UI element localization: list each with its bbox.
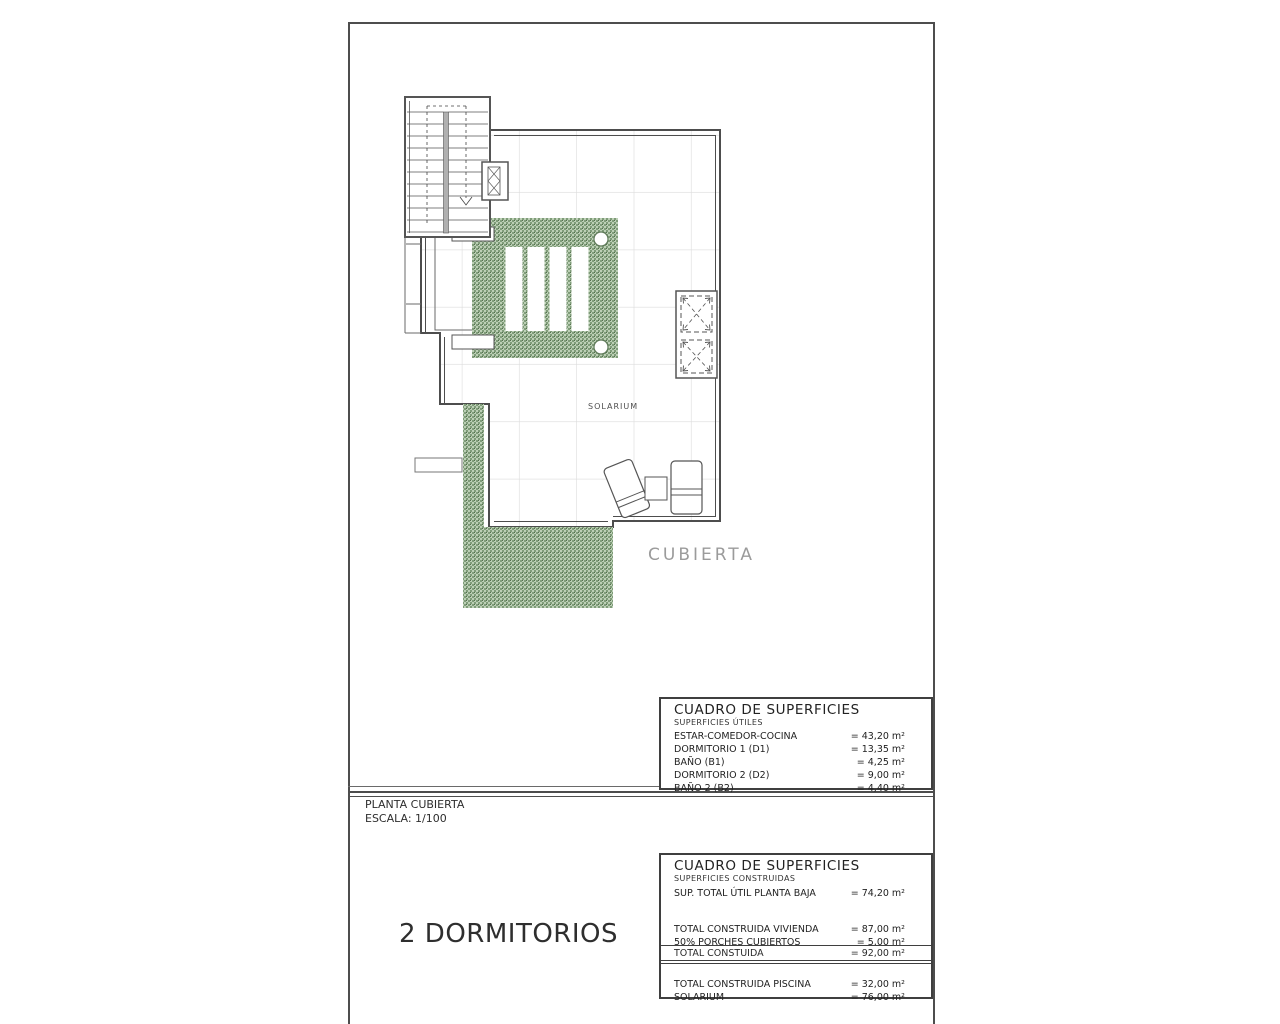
table-title: CUADRO DE SUPERFICIES	[674, 858, 860, 874]
side-table	[645, 477, 667, 500]
drawing-sheet: SOLARIUM CUBIERTA CUADRO DE SUPERFICIES …	[0, 0, 1280, 1024]
rule	[661, 963, 931, 964]
roof-plan-drawing	[0, 0, 1280, 1024]
table-title: CUADRO DE SUPERFICIES	[674, 702, 860, 718]
surfaces-table-construidas: CUADRO DE SUPERFICIES SUPERFICIES CONSTR…	[659, 853, 933, 999]
staircase	[405, 97, 490, 237]
table-row: BAÑO (B1) = 4,25 m²	[674, 757, 905, 770]
skylight-shafts	[676, 291, 717, 378]
roof-hatch-box	[482, 162, 508, 200]
table-subtitle: SUPERFICIES CONSTRUIDAS	[674, 874, 795, 883]
surfaces-table-utiles: CUADRO DE SUPERFICIES SUPERFICIES ÚTILES…	[659, 697, 933, 790]
bedrooms-label: 2 DORMITORIOS	[399, 919, 618, 949]
table-row: ESTAR-COMEDOR-COCINA = 43,20 m²	[674, 731, 905, 744]
total-row: TOTAL CONSTUIDA = 92,00 m²	[661, 945, 931, 961]
table-row: DORMITORIO 1 (D1) = 13,35 m²	[674, 744, 905, 757]
table-row: TOTAL CONSTRUIDA PISCINA = 32,00 m²	[674, 979, 905, 992]
table-row: SUP. TOTAL ÚTIL PLANTA BAJA = 74,20 m²	[674, 888, 905, 901]
table-row: TOTAL CONSTRUIDA VIVIENDA = 87,00 m²	[674, 924, 905, 937]
pergola	[452, 218, 618, 358]
cubierta-label: CUBIERTA	[648, 545, 755, 565]
table-row: BAÑO 2 (B2) = 4,40 m²	[674, 783, 905, 796]
plan-name: PLANTA CUBIERTA	[365, 798, 464, 812]
table-subtitle: SUPERFICIES ÚTILES	[674, 718, 763, 727]
table-row: DORMITORIO 2 (D2) = 9,00 m²	[674, 770, 905, 783]
left-ledge	[415, 458, 462, 472]
title-block: PLANTA CUBIERTA ESCALA: 1/100	[365, 798, 464, 826]
plan-scale: ESCALA: 1/100	[365, 812, 464, 826]
table-row: SOLARIUM = 76,00 m²	[674, 992, 905, 1005]
solarium-label: SOLARIUM	[588, 402, 638, 411]
